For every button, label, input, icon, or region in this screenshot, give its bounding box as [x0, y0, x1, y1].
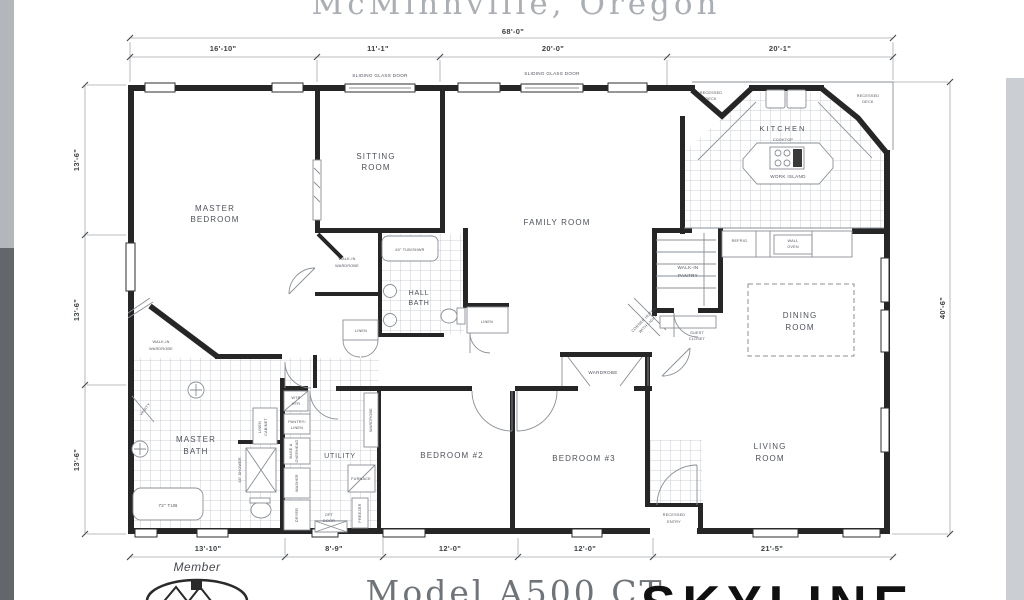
label-tub-shwr: 60" TUB/SHWR	[395, 248, 424, 252]
svg-text:LINEN: LINEN	[258, 421, 262, 433]
master-toilet	[251, 502, 271, 518]
svg-text:DOOR: DOOR	[323, 519, 335, 523]
room-label-kitchen: KITCHEN	[760, 124, 807, 133]
label-dryer: DRYER	[295, 508, 299, 522]
svg-text:WARDROBE: WARDROBE	[149, 347, 173, 351]
svg-text:OVEN: OVEN	[787, 245, 799, 249]
hall-sink	[384, 285, 397, 298]
svg-text:ROOM: ROOM	[755, 454, 784, 463]
svg-text:BATH: BATH	[408, 300, 429, 307]
dim-overall-width: 68'-0"	[502, 27, 524, 36]
svg-text:ROOM: ROOM	[785, 323, 814, 332]
svg-text:WARDROBE: WARDROBE	[335, 264, 359, 268]
room-label-utility: UTILITY	[324, 453, 356, 460]
pantry-linen-shape	[284, 414, 310, 434]
svg-text:ENTRY: ENTRY	[667, 520, 681, 524]
svg-text:BATH: BATH	[183, 447, 208, 456]
dim-left-3: 13'-6"	[72, 449, 81, 471]
label-recessed-deck-left: RECESSED	[700, 91, 723, 95]
room-label-bedroom-3: BEDROOM #3	[552, 454, 615, 463]
mirrored-door	[313, 160, 321, 220]
svg-text:BEDROOM: BEDROOM	[190, 215, 239, 224]
svg-text:FREEZER: FREEZER	[358, 503, 362, 522]
page-title: McMinnville, Oregon	[311, 0, 720, 22]
svg-text:LINEN: LINEN	[291, 426, 303, 430]
label-cooktop: COOKTOP	[773, 138, 794, 142]
svg-text:PANTRY: PANTRY	[678, 273, 698, 278]
label-pantry-linen: PANTRY/	[288, 420, 306, 424]
svg-text:HTR: HTR	[292, 402, 300, 406]
label-wtr-htr: WTR	[291, 396, 300, 400]
dim-top-1: 16'-10"	[210, 44, 237, 53]
brand-logo: SKYLINE	[641, 576, 915, 600]
room-label-hall-bath: HALL	[409, 290, 430, 297]
guest-closet-doors	[660, 316, 716, 328]
svg-text:WARDROBE: WARDROBE	[369, 408, 373, 432]
room-label-dining-room: DINING	[783, 311, 818, 320]
svg-text:CLOSET: CLOSET	[689, 337, 706, 341]
label-opt-door: OPT	[325, 513, 334, 517]
counter-band	[722, 231, 852, 257]
label-walk-in-wardrobe-master: WALK-IN	[152, 340, 169, 344]
room-label-master-bath: MASTER	[176, 435, 216, 444]
member-label: Member	[173, 560, 221, 574]
label-recessed-entry: RECESSED	[663, 513, 686, 517]
dim-left-1: 13'-6"	[72, 149, 81, 171]
footer: Member Model A500 CT SKYLINE	[147, 560, 915, 600]
floor-plan-sheet: McMinnville, Oregon 68'-0" 16'-10" 11'-1…	[0, 0, 1024, 600]
hall-toilet	[441, 309, 457, 323]
dim-left-2: 13'-6"	[72, 299, 81, 321]
label-work-island: WORK ISLAND	[770, 174, 806, 179]
label-washer: WASHER	[295, 474, 299, 492]
svg-text:DECK: DECK	[862, 100, 874, 104]
room-label-living-room: LIVING	[754, 442, 787, 451]
svg-text:ROOM: ROOM	[361, 163, 390, 172]
label-recessed-deck-right: RECESSED	[857, 94, 880, 98]
dim-top-4: 20'-1"	[769, 44, 791, 53]
sliding-glass-doors	[313, 84, 583, 220]
dining-rug-outline	[748, 284, 854, 356]
label-freezer: FREEZER	[358, 503, 362, 522]
svg-text:OVERHEAD: OVERHEAD	[295, 439, 299, 462]
label-shower-48: 48" SHOWER	[238, 457, 242, 483]
label-refrig: REFRIG.	[732, 239, 749, 243]
dim-bottom-2: 8'-9"	[325, 544, 343, 553]
svg-text:WASHER: WASHER	[295, 474, 299, 492]
dim-bottom-3: 12'-0"	[439, 544, 461, 553]
label-wall-oven: WALL	[788, 239, 799, 243]
label-linen-1: LINEN	[481, 320, 493, 324]
room-label-sitting-room: SITTING	[356, 152, 395, 161]
dim-overall-depth: 40'-6"	[938, 297, 947, 319]
label-wardrobe-bed2: WARDROBE	[369, 408, 373, 432]
room-label-family-room: FAMILY ROOM	[524, 218, 591, 227]
member-logo	[147, 580, 247, 600]
svg-text:BASE &: BASE &	[289, 443, 293, 458]
label-sliding-door-2: SLIDING GLASS DOOR	[524, 71, 580, 76]
label-wardrobe-bed3: WARDROBE	[588, 370, 617, 375]
dim-top-3: 20'-0"	[542, 44, 564, 53]
label-walk-in-wardrobe-sitting: WALK-IN	[338, 257, 355, 261]
floor-plan-drawing: McMinnville, Oregon 68'-0" 16'-10" 11'-1…	[0, 0, 1024, 600]
dim-bottom-4: 12'-0"	[574, 544, 596, 553]
label-linen-2: LINEN	[355, 329, 367, 333]
dim-top-2: 11'-1"	[367, 44, 389, 53]
room-label-bedroom-2: BEDROOM #2	[420, 451, 483, 460]
svg-text:DECK: DECK	[705, 97, 717, 101]
dim-bottom-1: 13'-10"	[195, 544, 222, 553]
label-walk-in-pantry: WALK-IN	[677, 265, 698, 270]
svg-text:48" SHOWER: 48" SHOWER	[238, 457, 242, 483]
kitchen-sink	[766, 90, 785, 108]
label-guest-closet: GUEST	[690, 331, 705, 335]
label-sliding-door-1: SLIDING GLASS DOOR	[352, 73, 408, 78]
label-tub-72: 72" TUB	[158, 503, 177, 508]
svg-text:CABINET: CABINET	[264, 418, 268, 436]
cooktop-graphic	[770, 147, 804, 169]
model-label: Model A500 CT	[366, 573, 665, 600]
label-furnace: FURNACE	[351, 477, 371, 481]
svg-text:DRYER: DRYER	[295, 508, 299, 522]
dim-bottom-5: 21'-5"	[761, 544, 783, 553]
room-label-master-bedroom: MASTER	[195, 204, 235, 213]
